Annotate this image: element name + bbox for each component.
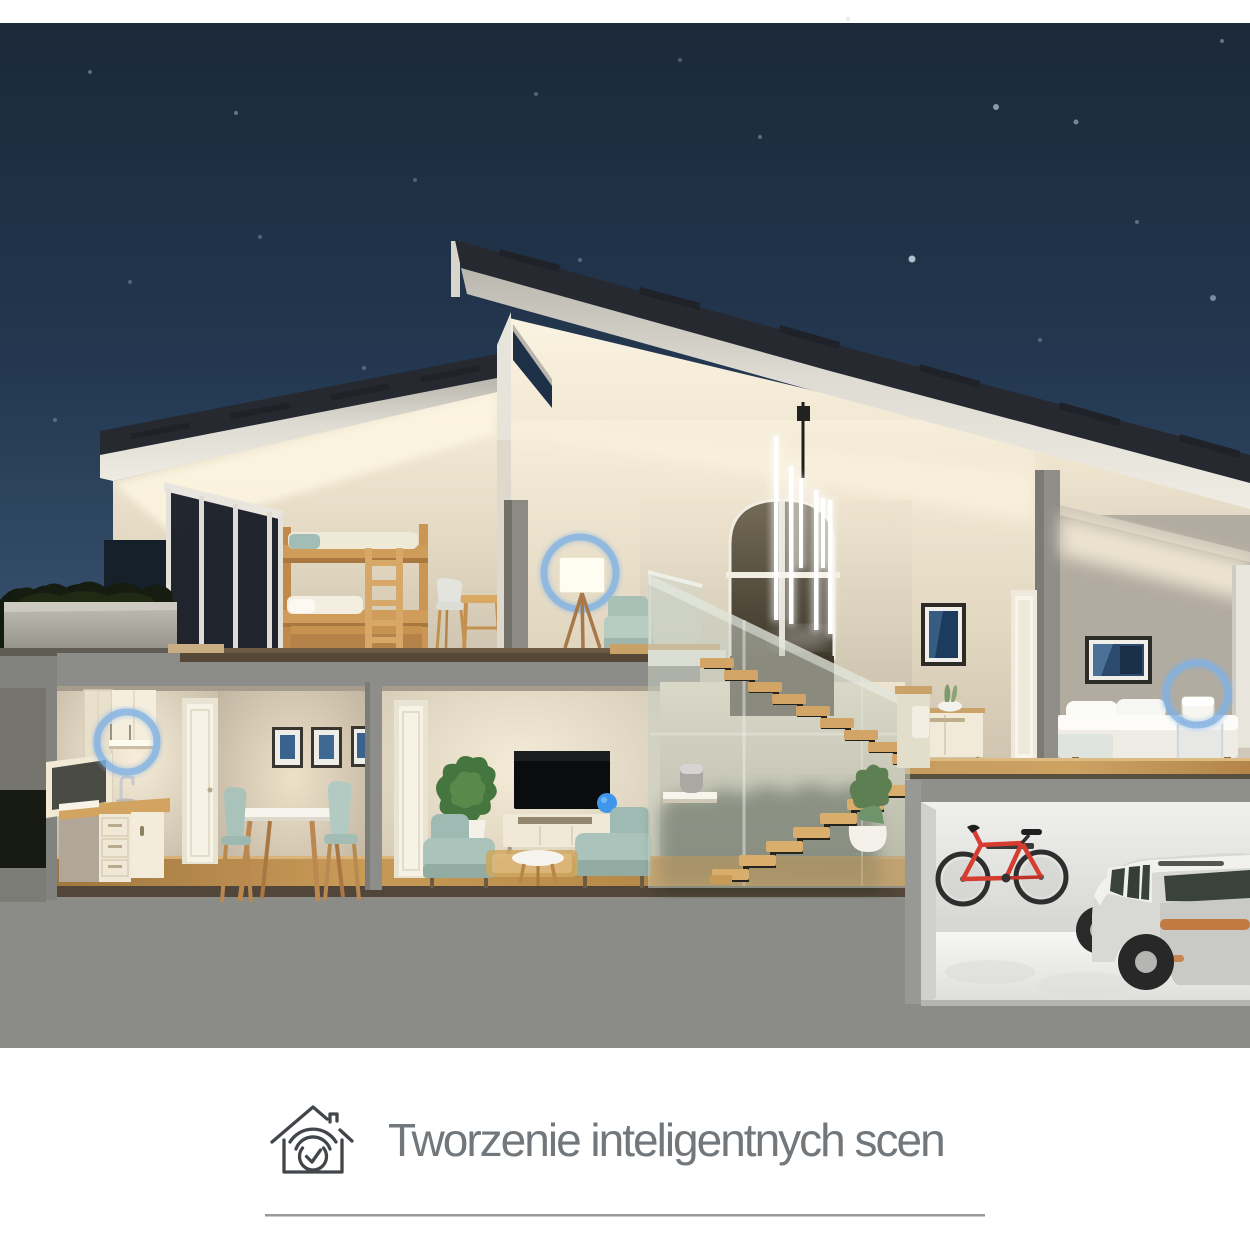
svg-text:Tworzenie inteligentnych scen: Tworzenie inteligentnych scen [388,1114,944,1166]
